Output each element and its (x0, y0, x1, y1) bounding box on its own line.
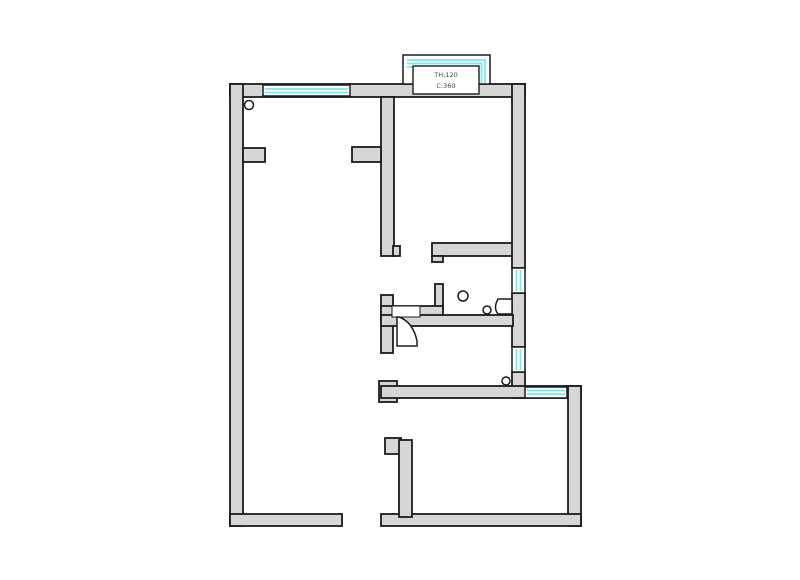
right-wall-mid (512, 293, 525, 347)
window-frame (512, 268, 525, 293)
door-stop-icon (245, 101, 254, 110)
floor-drain-icon (458, 291, 468, 301)
room2-right-wall (568, 386, 581, 526)
left-wall (230, 84, 243, 526)
bathroom-top-wall (432, 243, 513, 256)
bay-window: TH:120 C:360 (403, 55, 490, 94)
window-frame (263, 85, 350, 96)
bottom-left-wall (230, 514, 342, 526)
door-knob-icon (483, 306, 491, 314)
window-frame (512, 347, 525, 372)
bay-window-label-line1: TH:120 (433, 71, 457, 79)
window-right-upper (512, 268, 525, 293)
pipe-marker-icon (502, 377, 510, 385)
window-right-lower (512, 347, 525, 372)
floor-plan-canvas: TH:120 C:360 (0, 0, 800, 575)
walls (230, 84, 581, 526)
floor-plan: TH:120 C:360 (0, 0, 800, 575)
right-wall-upper (512, 84, 525, 268)
bay-window-label-line2: C:360 (436, 82, 455, 90)
window-top (263, 85, 350, 96)
central-wall (381, 97, 394, 256)
central-wall-stub (352, 147, 381, 162)
hall-door-opening (392, 306, 420, 317)
kitchen-stub-wall (399, 440, 412, 517)
bathroom-door-leaf-icon (496, 299, 513, 314)
central-wall-end-step (393, 246, 400, 256)
left-wall-stub (243, 148, 265, 162)
window-frame (525, 387, 567, 398)
window-room2 (525, 387, 567, 398)
bathroom-top-wall-tab (432, 256, 443, 262)
